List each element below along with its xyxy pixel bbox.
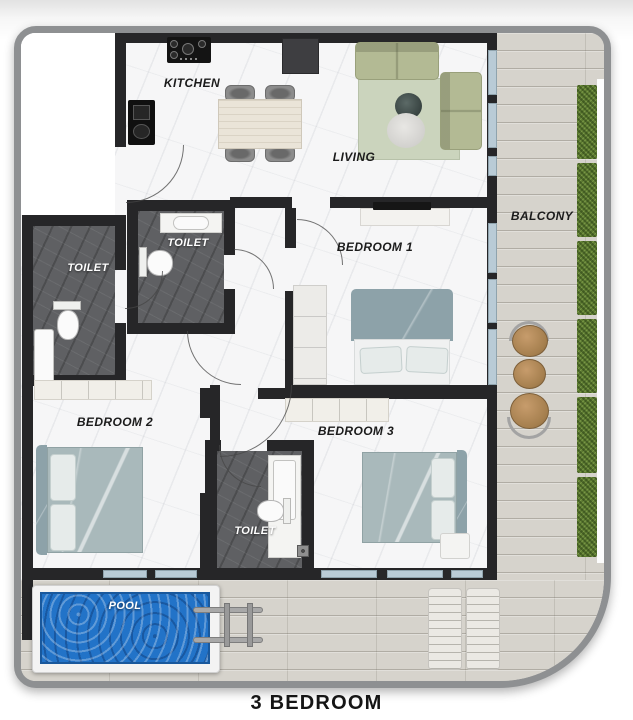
floor-plan-page: KITCHEN LIVING BALCONY BEDROOM 1 BEDROOM… [0,0,633,720]
toilet-bowl [257,500,284,522]
toilet-lower-label: TOILET [215,525,295,537]
toilet-tank [283,498,291,524]
stove-knobs [180,58,200,60]
pool-label: POOL [50,600,200,612]
pool-ladder-post [224,603,230,647]
hedge-planter-strip [597,79,604,563]
wall [127,200,138,334]
wall [205,440,217,568]
dresser [34,380,152,400]
wall [230,197,292,208]
bathroom-sink [173,216,209,230]
pool-ladder-post [247,603,253,647]
dresser [285,398,389,422]
wall [210,385,220,443]
sliding-door [103,570,147,578]
burner [170,40,178,48]
wall [224,289,235,334]
stove [167,37,211,63]
wall [285,208,296,248]
hedge [577,397,597,473]
window [488,223,497,273]
sink-bowl [133,105,150,120]
hedge [577,163,597,237]
dining-table [218,99,302,149]
wall [115,33,126,147]
wardrobe [293,285,327,385]
hedge [577,477,597,557]
bed-headboard [351,289,453,341]
bedroom2-label: BEDROOM 2 [70,415,160,429]
sofa [355,42,439,80]
outside-area [21,33,115,215]
nightstand [440,533,470,559]
floor-plan-card: KITCHEN LIVING BALCONY BEDROOM 1 BEDROOM… [14,26,611,688]
bed-headboard [36,445,47,555]
balcony-table [513,359,546,389]
kitchen-sink [128,100,155,145]
toilet-upper-left-label: TOILET [48,262,128,274]
sofa [440,72,482,150]
tv-console [360,208,450,226]
hedge [577,241,597,315]
burner [170,51,178,59]
fridge-cabinet [282,38,319,74]
wall [267,440,314,451]
sliding-door [155,570,197,578]
wall [22,215,126,226]
sink-bowl [133,124,150,139]
floor-drain [297,545,309,557]
sun-lounger [428,588,462,670]
pillow [405,346,448,374]
sliding-door [451,570,483,578]
plan-title: 3 BEDROOM [0,692,633,715]
window [488,50,497,95]
living-label: LIVING [314,150,394,164]
window [488,329,497,385]
wall [115,323,126,386]
pillow [50,454,76,501]
window [488,156,497,176]
hedge [577,319,597,393]
bed-headboard [457,450,467,545]
toilet-bowl [57,310,79,340]
hedge [577,85,597,159]
pillow [431,458,455,498]
toilet-tank [53,301,81,310]
pillow [50,504,76,551]
burner [182,43,194,55]
balcony-label: BALCONY [502,209,582,223]
window [488,279,497,323]
tv [373,202,431,210]
toilet-upper-mid-label: TOILET [148,237,228,249]
floor-plan: KITCHEN LIVING BALCONY BEDROOM 1 BEDROOM… [21,33,604,681]
side-table [387,113,425,148]
window [488,103,497,148]
balcony-chair [512,325,548,357]
pillow [359,346,402,374]
kitchen-label: KITCHEN [152,76,232,90]
wall [129,200,235,211]
sliding-door [387,570,443,578]
burner [198,40,206,48]
bedroom3-label: BEDROOM 3 [311,424,401,438]
sun-lounger [466,588,500,670]
sliding-door [321,570,377,578]
bedroom1-label: BEDROOM 1 [330,240,420,254]
